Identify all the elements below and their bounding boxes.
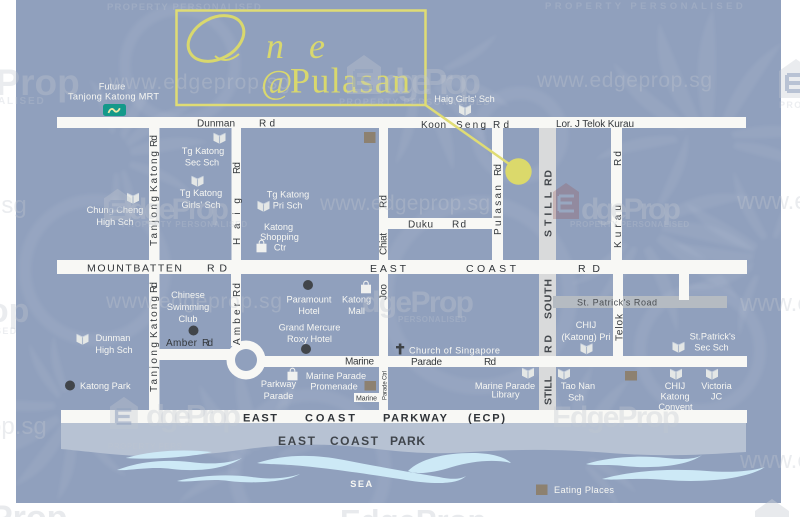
- svg-text:Parkway: Parkway: [261, 379, 297, 389]
- svg-text:Dunman: Dunman: [96, 333, 131, 343]
- svg-text:Rd: Rd: [484, 357, 496, 368]
- svg-text:www.ed: www.ed: [736, 188, 800, 215]
- svg-text:Telok: Telok: [615, 313, 626, 341]
- svg-text:Eating Places: Eating Places: [554, 485, 614, 495]
- svg-text:Katong: Katong: [149, 151, 160, 192]
- svg-text:Duku: Duku: [408, 220, 433, 231]
- svg-text:SOUTH: SOUTH: [543, 279, 555, 319]
- svg-text:Katong Park: Katong Park: [80, 381, 131, 391]
- svg-text:Marine: Marine: [356, 396, 377, 403]
- svg-text:Ctr: Ctr: [274, 243, 286, 253]
- svg-text:Victoria: Victoria: [701, 381, 732, 391]
- svg-text:STILL: STILL: [543, 191, 555, 237]
- svg-text:Pri Sch: Pri Sch: [273, 201, 303, 211]
- svg-text:COAST: COAST: [466, 263, 517, 275]
- svg-text:Katong: Katong: [264, 222, 293, 232]
- svg-text:CHIJ: CHIJ: [576, 320, 596, 330]
- svg-text:Rd: Rd: [493, 164, 504, 176]
- svg-text:JC: JC: [711, 392, 723, 402]
- svg-text:Library: Library: [491, 390, 519, 400]
- svg-text:PROPERTY PERSONALISED: PROPERTY PERSONALISED: [545, 1, 746, 12]
- svg-text:PARKWAY: PARKWAY: [383, 413, 448, 425]
- svg-text:www.edgeprop.sg: www.edgeprop.sg: [105, 290, 282, 313]
- svg-text:Tao Nan: Tao Nan: [561, 381, 595, 391]
- svg-text:Rd: Rd: [232, 162, 243, 174]
- svg-text:Sec Sch: Sec Sch: [694, 343, 728, 353]
- svg-text:Sec Sch: Sec Sch: [185, 158, 219, 168]
- svg-text:www.edgeprop.sg: www.edgeprop.sg: [536, 69, 712, 92]
- svg-text:Prop: Prop: [0, 292, 29, 330]
- svg-text:Hotel: Hotel: [298, 306, 319, 316]
- svg-text:MOUNTBATTEN: MOUNTBATTEN: [87, 263, 182, 275]
- svg-text:High Sch: High Sch: [95, 345, 132, 355]
- svg-text:Shopping: Shopping: [260, 232, 299, 242]
- svg-text:PERSONALISED: PERSONALISED: [0, 96, 46, 107]
- svg-text:Parade: Parade: [411, 357, 442, 368]
- svg-text:Roxy Hotel: Roxy Hotel: [287, 334, 332, 344]
- svg-text:EdgeProp: EdgeProp: [340, 503, 486, 517]
- svg-text:Katong: Katong: [660, 392, 689, 402]
- svg-text:ONALISED: ONALISED: [0, 326, 18, 336]
- svg-text:SEA: SEA: [350, 479, 373, 489]
- svg-text:www.e: www.e: [739, 447, 800, 474]
- svg-text:Dunman: Dunman: [197, 119, 235, 130]
- svg-text:PROPERTY PERS: PROPERTY PERS: [108, 442, 183, 451]
- svg-text:Grand Mercure: Grand Mercure: [279, 323, 341, 333]
- svg-text:Paramount: Paramount: [287, 295, 332, 305]
- svg-text:rop.sg: rop.sg: [0, 413, 47, 440]
- svg-text:www.edgeprop.sg: www.edgeprop.sg: [108, 71, 290, 94]
- svg-text:PROPERTY PERSONALISED: PROPERTY PERSONALISED: [107, 2, 262, 13]
- svg-text:(Katong) Pri: (Katong) Pri: [561, 332, 610, 342]
- svg-text:dgeProp: dgeProp: [383, 61, 481, 102]
- svg-text:Marine Parade: Marine Parade: [306, 371, 366, 381]
- svg-text:op.sg: op.sg: [0, 192, 27, 219]
- svg-text:www.edgeprop.sg: www.edgeprop.sg: [319, 192, 490, 215]
- svg-text:www.e: www.e: [739, 290, 800, 317]
- svg-text:Lor. J Telok Kurau: Lor. J Telok Kurau: [556, 119, 634, 130]
- svg-text:n: n: [266, 26, 284, 66]
- svg-text:Amber: Amber: [166, 338, 198, 349]
- svg-text:Chiat: Chiat: [379, 233, 390, 255]
- svg-text:Koon: Koon: [421, 120, 446, 131]
- svg-text:RD: RD: [543, 170, 555, 186]
- svg-text:St.Patrick's: St.Patrick's: [690, 332, 736, 342]
- svg-text:PROPERT: PROPERT: [779, 100, 800, 110]
- svg-text:Prop: Prop: [0, 499, 67, 517]
- svg-text:Church of Singapore: Church of Singapore: [409, 346, 500, 356]
- svg-text:Parade Ctrl: Parade Ctrl: [383, 371, 389, 400]
- svg-text:St. Patrick's Road: St. Patrick's Road: [577, 298, 657, 308]
- svg-text:Rd: Rd: [452, 220, 466, 231]
- svg-text:Marine: Marine: [345, 357, 374, 368]
- svg-text:Rd: Rd: [149, 135, 160, 147]
- svg-text:COAST: COAST: [305, 413, 355, 425]
- svg-text:CHIJ: CHIJ: [665, 381, 685, 391]
- svg-text:Club: Club: [179, 314, 198, 324]
- svg-text:COAST: COAST: [330, 434, 379, 448]
- svg-text:PROPERTY PERSONALISED: PROPERTY PERSONALISED: [570, 220, 690, 229]
- svg-text:dgeProp: dgeProp: [146, 398, 241, 433]
- svg-text:PROPERTY PERSONALISED: PROPERTY PERSONALISED: [122, 220, 248, 229]
- svg-text:Rd: Rd: [202, 338, 213, 349]
- svg-text:EdgeProp: EdgeProp: [552, 401, 680, 434]
- svg-text:PARK: PARK: [390, 434, 425, 448]
- svg-text:PROPERTY PERSONALISED: PROPERTY PERSONALISED: [339, 97, 491, 107]
- svg-text:Parade: Parade: [264, 391, 294, 401]
- svg-text:Tg Katong: Tg Katong: [182, 146, 224, 156]
- svg-text:Promenade: Promenade: [310, 382, 358, 392]
- svg-text:PERSONALISED: PERSONALISED: [398, 315, 467, 324]
- svg-text:Tg Katong: Tg Katong: [267, 190, 309, 200]
